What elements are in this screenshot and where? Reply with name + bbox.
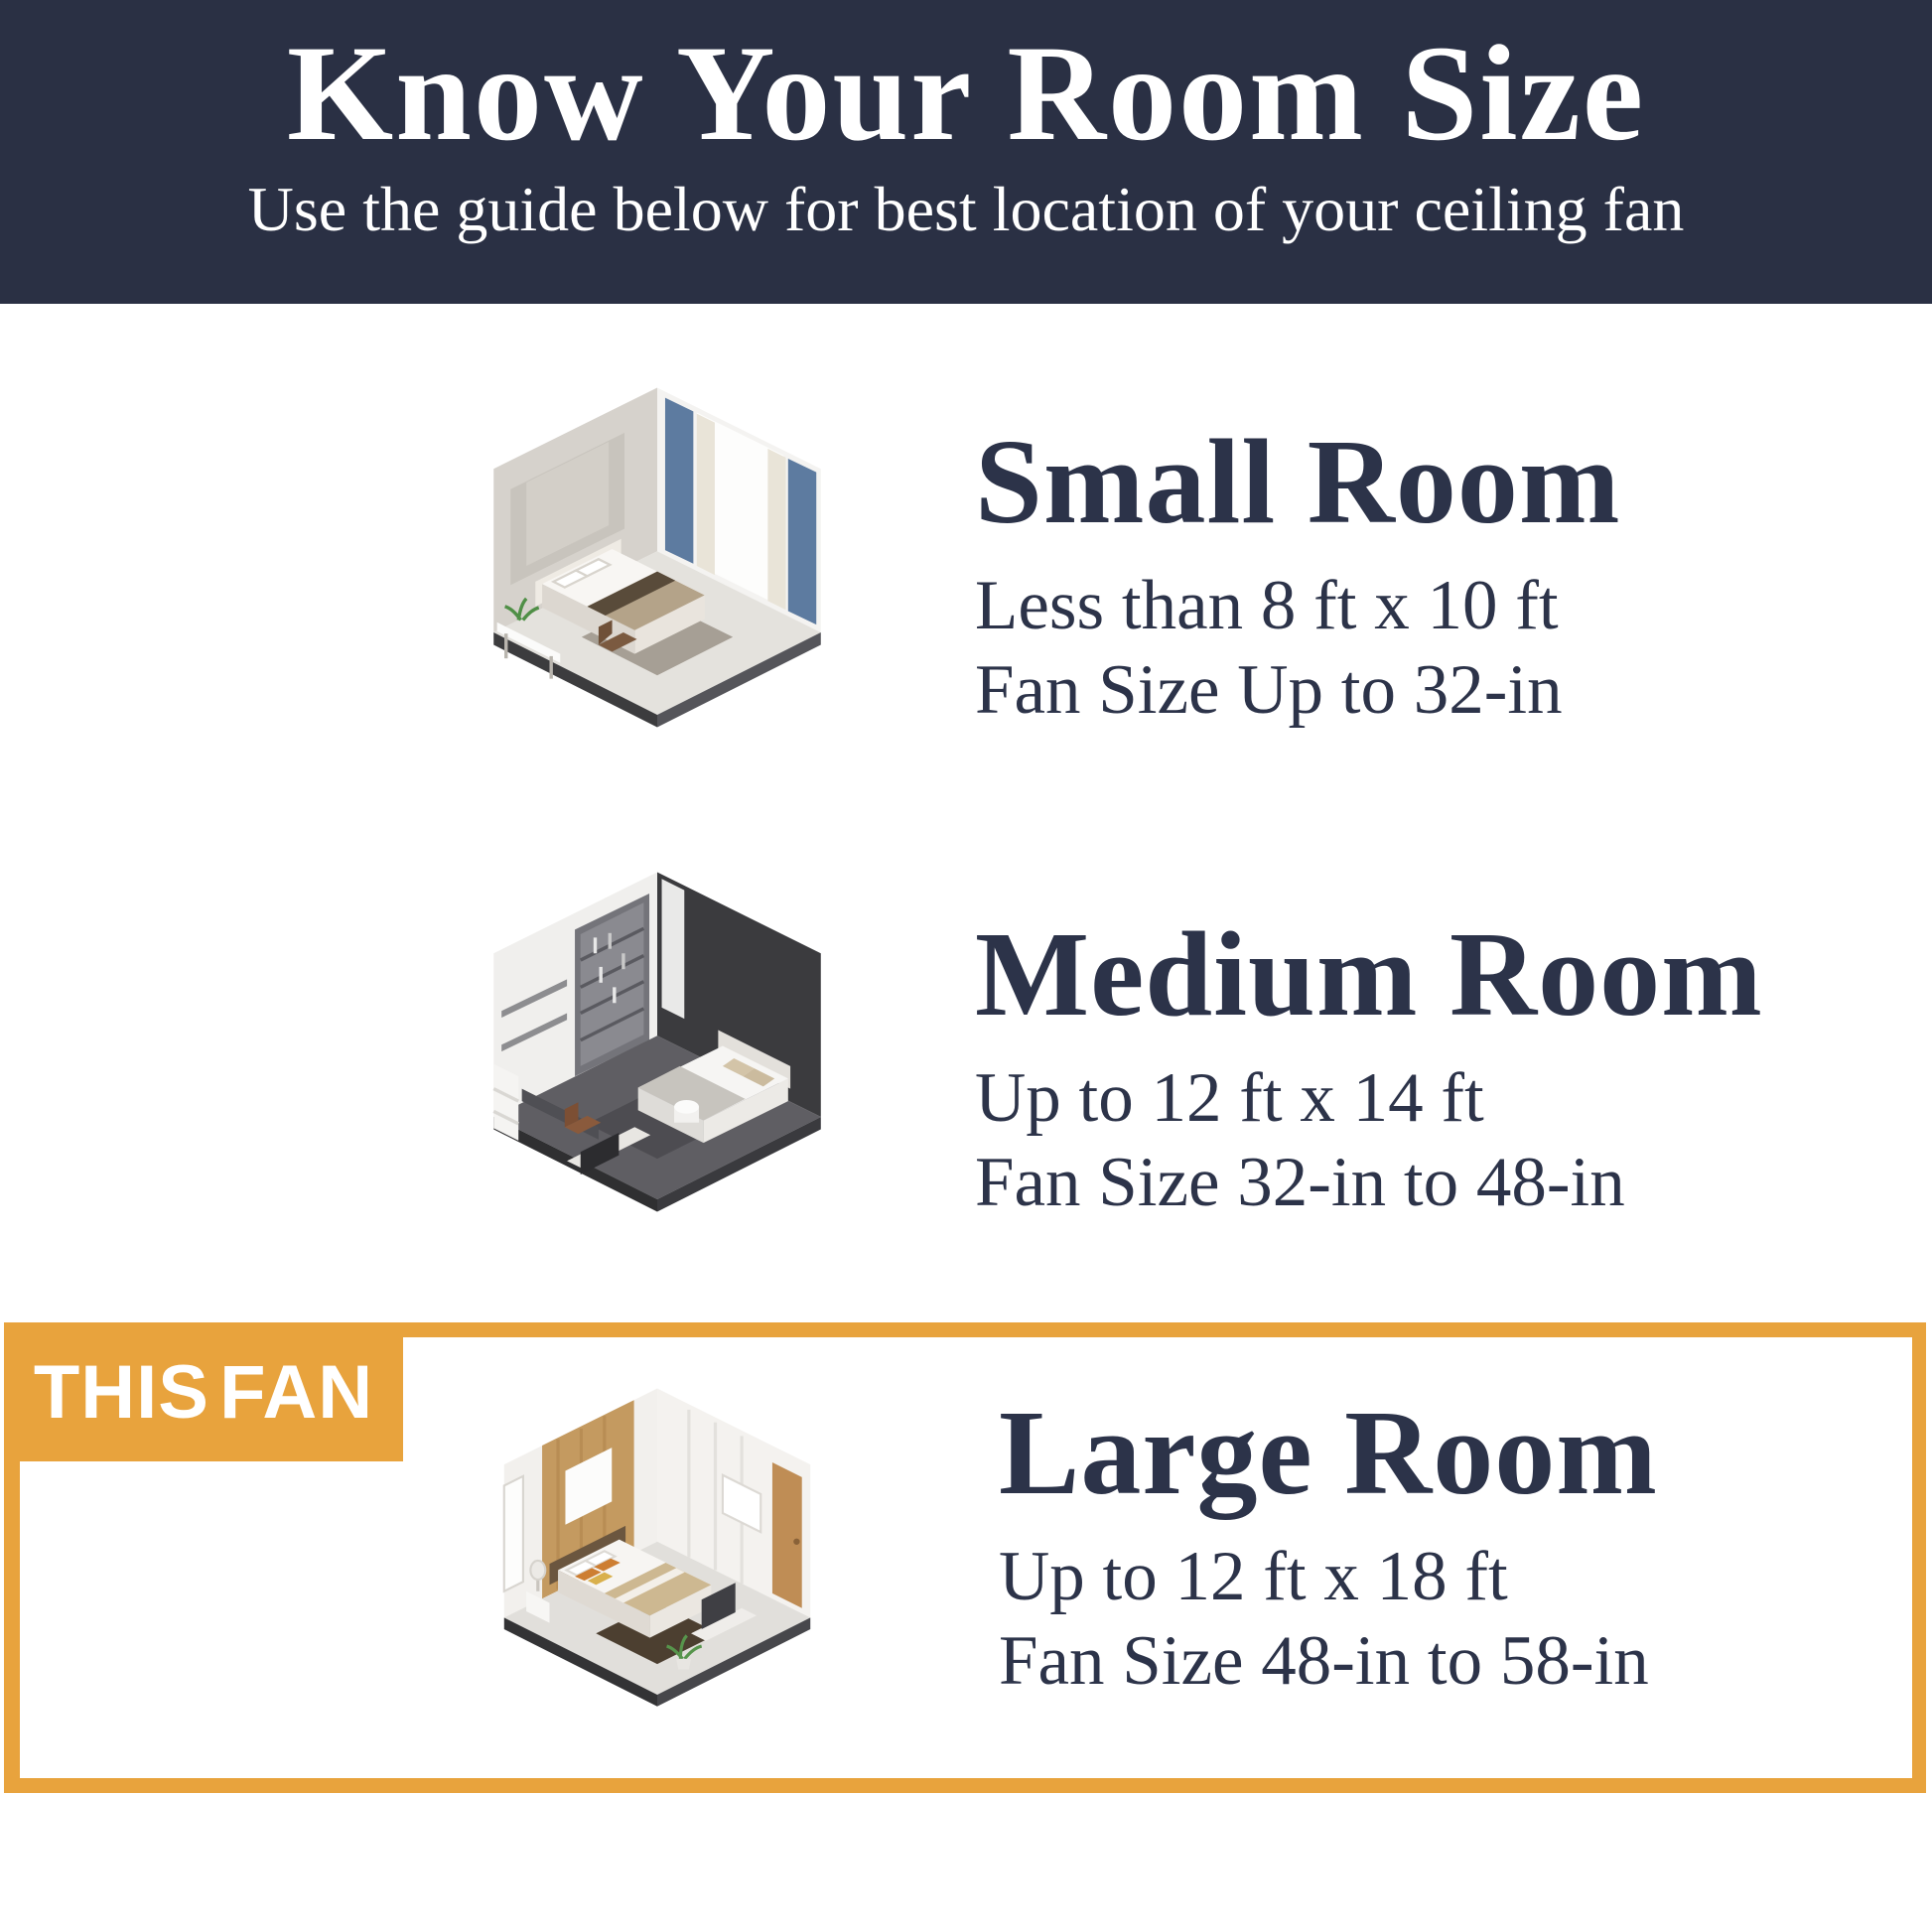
this-fan-badge: THIS FAN <box>4 1322 403 1461</box>
medium-room-text: Medium Room Up to 12 ft x 14 ft Fan Size… <box>975 909 1763 1225</box>
medium-room-dimensions: Up to 12 ft x 14 ft <box>975 1056 1763 1141</box>
page-title: Know Your Room Size <box>0 0 1932 164</box>
medium-room-title: Medium Room <box>975 909 1763 1040</box>
large-room-text: Large Room Up to 12 ft x 18 ft Fan Size … <box>999 1388 1658 1704</box>
large-room-title: Large Room <box>999 1388 1658 1519</box>
large-room-illustration <box>425 1346 890 1768</box>
medium-room-illustration <box>409 827 905 1279</box>
large-room-fan-size: Fan Size 48-in to 58-in <box>999 1619 1658 1704</box>
medium-room-fan-size: Fan Size 32-in to 48-in <box>975 1141 1763 1225</box>
this-fan-badge-label: THIS FAN <box>34 1349 373 1436</box>
page-subtitle: Use the guide below for best location of… <box>0 176 1932 242</box>
large-room-dimensions: Up to 12 ft x 18 ft <box>999 1535 1658 1619</box>
small-room-text: Small Room Less than 8 ft x 10 ft Fan Si… <box>975 417 1621 733</box>
room-size-infographic: Know Your Room Size Use the guide below … <box>0 0 1932 1932</box>
small-room-dimensions: Less than 8 ft x 10 ft <box>975 564 1621 648</box>
small-room-fan-size: Fan Size Up to 32-in <box>975 648 1621 733</box>
small-room-illustration <box>409 343 905 794</box>
small-room-title: Small Room <box>975 417 1621 548</box>
header-banner: Know Your Room Size Use the guide below … <box>0 0 1932 304</box>
